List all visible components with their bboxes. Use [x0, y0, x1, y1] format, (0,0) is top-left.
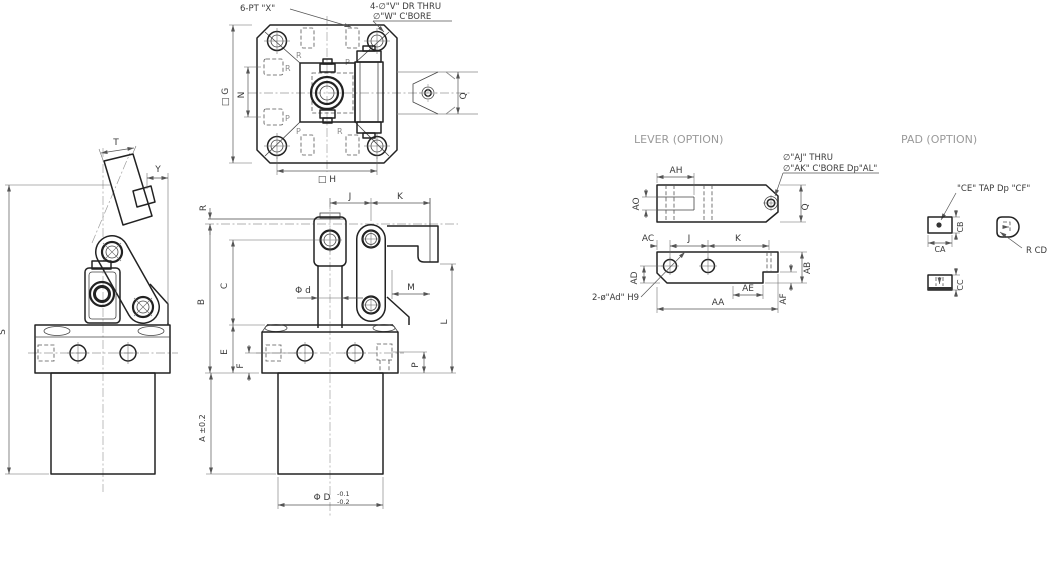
dim-label-q-top: Q [459, 92, 469, 99]
port-label-r1: R [296, 51, 302, 60]
clamp-drawing-svg: R R P P P R [0, 0, 1056, 566]
lever-side-view: AC J K AD AE AF AB AA 2-ø"Ad" H9 [592, 234, 813, 313]
dim-label-h: □ H [318, 175, 336, 185]
lever-top-view: AH AO Q ∅"AJ" THRU ∅"AK" C'BORE Dp"AL" [632, 153, 879, 222]
dim-label-k-front: K [397, 192, 404, 202]
dim-label-ah: AH [670, 166, 683, 176]
front-view: R B C E F A ±0.2 J K [197, 192, 458, 516]
dim-label-ad: AD [630, 271, 640, 284]
callout-dowel-pins: 2-ø"Ad" H9 [592, 293, 639, 303]
dim-label-cb: CB [956, 221, 965, 232]
callout-corner-holes-2: ∅"W" C'BORE [373, 12, 431, 22]
dim-label-cc: CC [956, 279, 965, 291]
dim-label-ca: CA [934, 245, 946, 254]
callout-corner-holes-1: 4-∅"V" DR THRU [370, 2, 441, 12]
pad-top-view: CB CA [928, 210, 965, 254]
dim-label-af: AF [779, 293, 789, 304]
dim-label-aa: AA [712, 298, 725, 308]
dim-label-j-lever: J [687, 234, 691, 244]
dim-label-ac: AC [642, 234, 654, 244]
dim-label-b: B [197, 299, 207, 305]
link-plate-side [102, 242, 153, 317]
technical-drawing-page: R R P P P R [0, 0, 1056, 566]
piston-housing [355, 46, 383, 138]
dim-label-a: A ±0.2 [198, 414, 207, 441]
flange-side [35, 325, 170, 373]
front-view-dimensions: R B C E F A ±0.2 J K [197, 192, 456, 509]
link-bar-front [361, 229, 381, 315]
callout-pad-radius: R CD [1026, 246, 1048, 256]
dim-label-s: S [0, 329, 8, 335]
pad-option-title: PAD (OPTION) [901, 133, 977, 146]
dim-label-l: L [440, 319, 450, 324]
lever-option-title: LEVER (OPTION) [634, 133, 723, 146]
dim-label-y: Y [154, 165, 161, 175]
callout-port-tap: 6-PT "X" [240, 4, 275, 14]
dim-label-t: T [112, 138, 119, 148]
dim-label-ae: AE [742, 284, 754, 294]
dim-label-c: C [220, 283, 230, 289]
dim-label-k-lever: K [735, 234, 742, 244]
lever-option: LEVER (OPTION) AH AO Q ∅"AJ" THRU ∅"AK" … [592, 133, 879, 313]
cylinder-front [278, 373, 383, 474]
dim-label-p-front: P [411, 362, 421, 368]
side-view: T Y S [0, 138, 178, 492]
port-label-r2: R [285, 64, 291, 73]
dim-tol-bot: -0.2 [337, 498, 350, 506]
pad-front-view: CC [928, 268, 965, 297]
callout-lever-hole-1: ∅"AJ" THRU [783, 153, 833, 163]
dim-label-ao: AO [632, 197, 642, 210]
dim-label-e: E [220, 349, 230, 355]
callout-pad-tap: "CE" TAP Dp "CF" [957, 184, 1030, 194]
dim-label-D: Φ D [314, 493, 331, 503]
pad-option: PAD (OPTION) "CE" TAP Dp "CF" CB CA R CD [901, 133, 1048, 297]
dim-label-j-front: J [348, 192, 352, 202]
callout-lever-hole-2: ∅"AK" C'BORE Dp"AL" [783, 164, 877, 174]
dim-label-ab: AB [803, 262, 813, 274]
port-label-p2: P [285, 114, 290, 123]
dim-label-g: □ G [221, 88, 231, 106]
dim-label-q-lever: Q [801, 203, 811, 210]
dim-label-d-small: Φ d [295, 286, 311, 296]
port-label-r3: R [337, 127, 343, 136]
clamp-arm-side [104, 154, 152, 225]
dim-label-m: M [407, 283, 415, 293]
dim-label-r-front: R [199, 205, 209, 211]
dim-label-n: N [237, 92, 247, 99]
dim-label-f: F [236, 363, 246, 368]
pad-radius-view: R CD [997, 217, 1048, 256]
port-label-p3: P [296, 127, 301, 136]
dim-tol-top: -0.1 [337, 490, 350, 498]
top-view: R R P P P R [221, 2, 478, 185]
